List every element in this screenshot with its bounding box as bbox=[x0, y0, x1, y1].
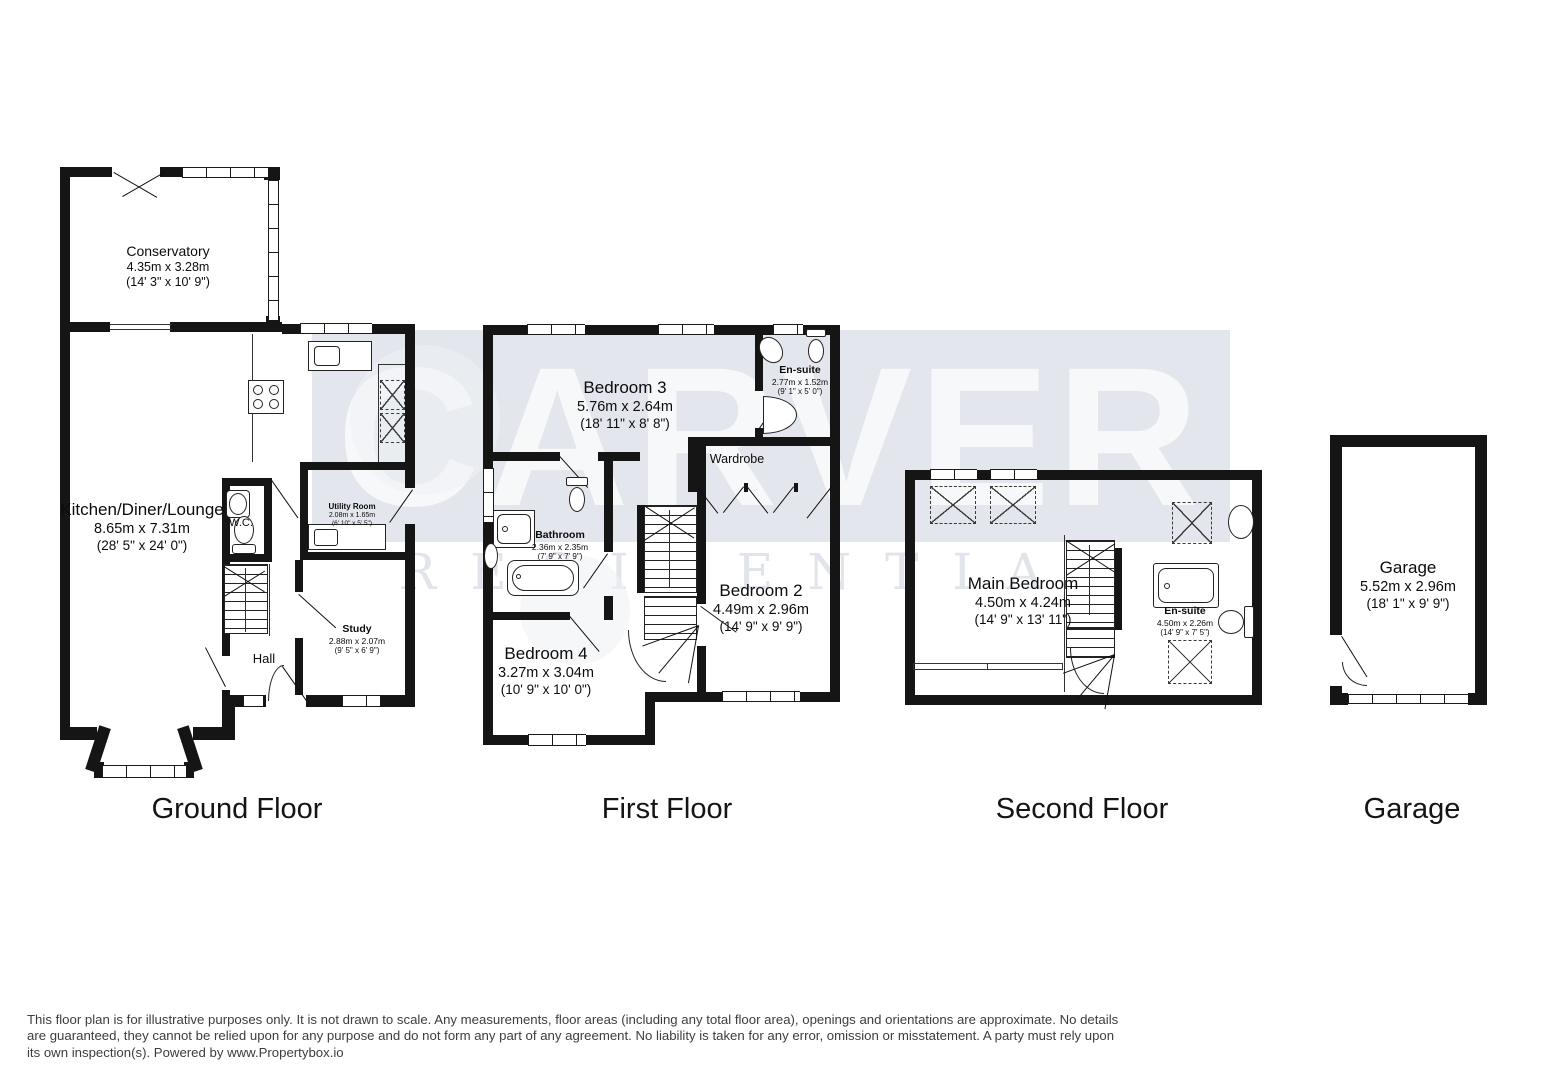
room-label-bedroom3: Bedroom 3 5.76m x 2.64m (18' 11" x 8' 8"… bbox=[577, 378, 673, 433]
skylight-icon bbox=[990, 486, 1036, 524]
room-label-main-bedroom: Main Bedroom 4.50m x 4.24m (14' 9" x 13'… bbox=[968, 574, 1079, 629]
wall bbox=[295, 560, 303, 592]
watermark-disc bbox=[350, 345, 500, 495]
wall bbox=[300, 462, 308, 560]
room-label-hall: Hall bbox=[253, 651, 275, 667]
window bbox=[300, 323, 372, 334]
room-imperial: (14' 3" x 10' 9") bbox=[126, 275, 210, 290]
appliance-icon bbox=[380, 413, 405, 443]
room-metric: 5.76m x 2.64m bbox=[577, 399, 673, 417]
wall bbox=[1330, 435, 1342, 635]
floor-title-first: First Floor bbox=[602, 793, 733, 826]
room-imperial: (28' 5" x 24' 0") bbox=[60, 538, 224, 554]
room-name: En-suite bbox=[772, 364, 828, 377]
drain-icon bbox=[1164, 583, 1170, 589]
room-name: Garage bbox=[1360, 558, 1456, 579]
room-imperial: (7' 9" x 7' 9") bbox=[532, 552, 588, 562]
wall bbox=[905, 695, 1262, 705]
window bbox=[930, 469, 977, 480]
wall bbox=[1475, 435, 1487, 705]
counter-line bbox=[378, 364, 405, 365]
room-name: Bathroom bbox=[532, 529, 588, 542]
wall bbox=[300, 462, 415, 470]
room-label-kitchen: Kitchen/Diner/Lounge 8.65m x 7.31m (28' … bbox=[60, 500, 224, 555]
window bbox=[722, 691, 800, 702]
wall bbox=[1330, 693, 1348, 705]
floor-title-garage: Garage bbox=[1364, 793, 1461, 826]
line bbox=[110, 324, 172, 325]
wall bbox=[493, 452, 560, 461]
window bbox=[658, 324, 714, 335]
bath-icon bbox=[512, 565, 574, 591]
room-metric: 8.65m x 7.31m bbox=[60, 521, 224, 539]
window bbox=[1348, 694, 1468, 704]
window bbox=[268, 180, 279, 320]
wall bbox=[755, 325, 763, 391]
low-window bbox=[913, 663, 914, 670]
wall bbox=[306, 695, 342, 707]
room-name: W.C. bbox=[229, 517, 253, 530]
room-name: Bedroom 2 bbox=[713, 581, 809, 602]
wall bbox=[380, 695, 415, 707]
room-imperial: (9' 5" x 6' 9") bbox=[329, 646, 385, 656]
stairs-line bbox=[269, 564, 270, 636]
skylight-icon bbox=[1168, 640, 1212, 684]
toilet-icon bbox=[566, 477, 588, 486]
room-label-ensuite-second: En-suite 4.50m x 2.26m (14' 9" x 7' 5") bbox=[1157, 605, 1213, 638]
wall bbox=[483, 612, 570, 620]
room-label-bedroom2: Bedroom 2 4.49m x 2.96m (14' 9" x 9' 9") bbox=[713, 581, 809, 636]
room-metric: 2.77m x 1.52m bbox=[772, 377, 828, 387]
floorplan-image: CARVER RESIDENTIAL bbox=[0, 0, 1544, 1080]
room-metric: 5.52m x 2.96m bbox=[1360, 579, 1456, 597]
room-label-ensuite-first: En-suite 2.77m x 1.52m (9' 1" x 5' 0") bbox=[772, 364, 828, 397]
room-label-wardrobe: Wardrobe bbox=[710, 452, 764, 467]
window bbox=[990, 469, 1037, 480]
burner-icon bbox=[269, 385, 279, 395]
room-name: Bedroom 4 bbox=[498, 644, 594, 665]
wall bbox=[645, 700, 655, 745]
door-arc bbox=[1342, 662, 1367, 686]
wall bbox=[688, 437, 840, 446]
wall bbox=[263, 695, 266, 707]
burner-icon bbox=[269, 399, 279, 409]
room-imperial: (14' 9" x 13' 11") bbox=[968, 612, 1079, 628]
wall bbox=[483, 325, 493, 745]
room-name: Conservatory bbox=[126, 243, 210, 260]
room-name: Main Bedroom bbox=[968, 574, 1079, 595]
room-label-bathroom: Bathroom 2.36m x 2.35m (7' 9" x 7' 9") bbox=[532, 529, 588, 562]
room-metric: 4.49m x 2.96m bbox=[713, 602, 809, 620]
toilet-icon bbox=[1244, 606, 1254, 638]
room-imperial: (10' 9" x 10' 0") bbox=[498, 682, 594, 698]
bay-window bbox=[102, 765, 186, 778]
wall bbox=[170, 322, 282, 332]
tap-icon bbox=[516, 574, 521, 579]
room-imperial: (14' 9" x 7' 5") bbox=[1157, 628, 1213, 638]
room-label-conservatory: Conservatory 4.35m x 3.28m (14' 3" x 10'… bbox=[126, 243, 210, 291]
window bbox=[773, 324, 803, 335]
room-metric: 2.36m x 2.35m bbox=[532, 542, 588, 552]
burner-icon bbox=[253, 385, 263, 395]
wall bbox=[794, 483, 798, 492]
stairs-treads bbox=[644, 505, 697, 593]
sink-icon bbox=[229, 493, 247, 515]
room-label-garage: Garage 5.52m x 2.96m (18' 1" x 9' 9") bbox=[1360, 558, 1456, 613]
door-leaf bbox=[271, 480, 298, 518]
room-metric: 4.50m x 4.24m bbox=[968, 595, 1079, 613]
window bbox=[342, 695, 380, 707]
wall bbox=[637, 505, 644, 593]
wall bbox=[830, 325, 840, 702]
wall bbox=[300, 552, 415, 560]
room-imperial: (14' 9" x 9' 9") bbox=[713, 619, 809, 635]
wall bbox=[60, 167, 112, 177]
toilet-icon bbox=[808, 339, 824, 363]
stairs-curve bbox=[628, 630, 666, 682]
sink-icon bbox=[484, 543, 498, 569]
sink-icon bbox=[1228, 505, 1254, 539]
room-name: Kitchen/Diner/Lounge bbox=[60, 500, 224, 521]
room-name: Wardrobe bbox=[710, 452, 764, 467]
door-leaf bbox=[122, 171, 166, 197]
window bbox=[528, 734, 586, 746]
sink-icon bbox=[314, 529, 338, 546]
stove-icon bbox=[248, 380, 284, 414]
wall bbox=[832, 483, 840, 492]
room-metric: 4.35m x 3.28m bbox=[126, 260, 210, 275]
skylight-icon bbox=[930, 486, 976, 524]
room-name: Hall bbox=[253, 651, 275, 667]
skylight-icon bbox=[1172, 502, 1212, 544]
floor-title-second: Second Floor bbox=[996, 793, 1169, 826]
wall bbox=[222, 554, 272, 562]
toilet-icon bbox=[1218, 610, 1244, 634]
wall bbox=[1468, 693, 1487, 705]
wall bbox=[604, 596, 613, 620]
stairs-line bbox=[245, 568, 246, 632]
room-metric: 2.88m x 2.07m bbox=[329, 636, 385, 646]
wall bbox=[697, 446, 706, 604]
wall bbox=[264, 478, 272, 562]
wall bbox=[604, 452, 613, 552]
counter-line bbox=[378, 364, 379, 462]
toilet-icon bbox=[569, 487, 585, 512]
room-name: Study bbox=[329, 623, 385, 636]
room-imperial: (18' 1" x 9' 9") bbox=[1360, 596, 1456, 612]
wall bbox=[1252, 470, 1262, 705]
room-imperial: (6' 10" x 5' 5") bbox=[328, 520, 375, 528]
room-imperial: (9' 1" x 5' 0") bbox=[772, 387, 828, 397]
stairs-curve bbox=[1070, 648, 1104, 694]
wall bbox=[222, 690, 230, 727]
room-label-study: Study 2.88m x 2.07m (9' 5" x 6' 9") bbox=[329, 623, 385, 656]
room-name: En-suite bbox=[1157, 605, 1213, 618]
window bbox=[527, 324, 585, 335]
counter-line bbox=[252, 412, 253, 462]
floor-title-ground: Ground Floor bbox=[152, 793, 323, 826]
toilet-icon bbox=[232, 544, 256, 554]
toilet-icon bbox=[806, 329, 826, 337]
room-label-wc: W.C. bbox=[229, 517, 253, 530]
room-imperial: (18' 11" x 8' 8") bbox=[577, 416, 673, 432]
room-metric: 3.27m x 3.04m bbox=[498, 665, 594, 683]
low-window bbox=[987, 663, 988, 670]
room-metric: 4.50m x 2.26m bbox=[1157, 618, 1213, 628]
burner-icon bbox=[253, 399, 263, 409]
low-window bbox=[1062, 663, 1063, 670]
window bbox=[243, 695, 263, 707]
door-leaf bbox=[114, 172, 158, 198]
room-metric: 2.08m x 1.65m bbox=[328, 512, 375, 521]
counter-line bbox=[252, 334, 253, 380]
room-label-bedroom4: Bedroom 4 3.27m x 3.04m (10' 9" x 10' 0"… bbox=[498, 644, 594, 699]
room-name: Bedroom 3 bbox=[577, 378, 673, 399]
line bbox=[110, 329, 172, 330]
room-label-utility: Utility Room 2.08m x 1.65m (6' 10" x 5' … bbox=[328, 502, 375, 528]
door-arc bbox=[268, 665, 284, 701]
wall bbox=[60, 727, 97, 740]
wall bbox=[1330, 435, 1487, 447]
wall bbox=[60, 167, 70, 332]
appliance-icon bbox=[380, 380, 405, 410]
disclaimer-text: This floor plan is for illustrative purp… bbox=[27, 1012, 1119, 1061]
sink-icon bbox=[314, 346, 340, 366]
window bbox=[182, 167, 268, 178]
wall bbox=[697, 646, 706, 692]
drain-icon bbox=[502, 526, 508, 532]
room-name: Utility Room bbox=[328, 502, 375, 512]
